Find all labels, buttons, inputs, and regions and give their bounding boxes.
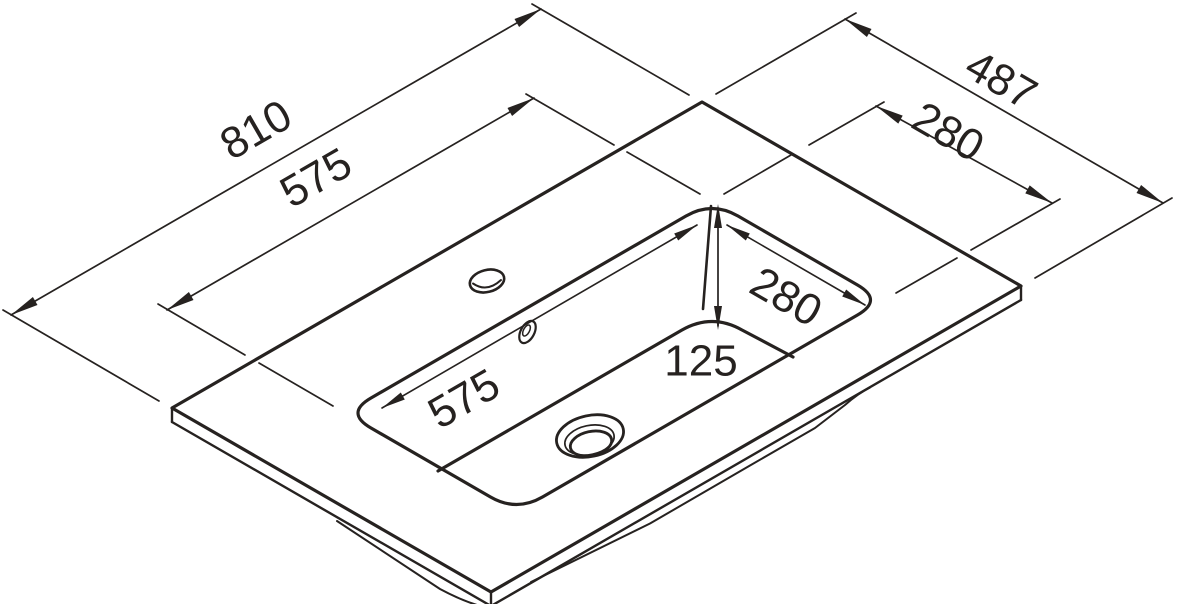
label-slab-depth: 487: [957, 40, 1045, 119]
dimension-line: [845, 19, 1163, 203]
basin-corner-edge: [703, 206, 711, 309]
dimension-basin-length-inner: [382, 225, 697, 408]
extension-line: [3, 310, 159, 401]
arrowhead-icon: [674, 225, 697, 241]
label-slab-length: 810: [212, 90, 300, 169]
extension-line: [809, 102, 884, 145]
dimension-line: [382, 225, 697, 408]
arrowhead-icon: [876, 106, 903, 124]
arrowhead-icon: [714, 306, 722, 330]
washbasin-dimension-drawing: 810 575 487 280 575 280 125: [0, 0, 1200, 604]
overflow-hole: [516, 318, 539, 346]
label-basin-length-inner: 575: [420, 359, 508, 438]
extension-line: [259, 363, 333, 406]
arrowhead-icon: [845, 19, 872, 37]
extension-line: [724, 155, 791, 194]
arrowhead-icon: [842, 290, 865, 306]
arrowhead-icon: [508, 98, 535, 116]
extension-line: [532, 4, 689, 95]
faucet-hole: [467, 266, 506, 296]
label-basin-width-top: 280: [904, 92, 992, 171]
label-basin-width-inner: 280: [742, 257, 830, 336]
extension-line: [716, 13, 856, 94]
technical-drawing-page: 810 575 487 280 575 280 125: [0, 0, 1200, 604]
arrowhead-icon: [167, 292, 194, 310]
arrowhead-icon: [515, 9, 542, 27]
extension-line: [158, 304, 245, 355]
label-basin-depth: 125: [664, 337, 737, 386]
extension-line: [896, 258, 957, 293]
slab-bottom-outline: [172, 300, 1021, 604]
dimension-line: [11, 9, 541, 315]
arrowhead-icon: [1025, 185, 1052, 203]
arrowhead-icon: [1137, 185, 1164, 203]
dimension-slab-length: [3, 4, 689, 401]
extension-line: [971, 199, 1060, 250]
arrowhead-icon: [11, 297, 38, 315]
arrowhead-icon: [382, 393, 405, 409]
arrowhead-icon: [727, 225, 750, 241]
extension-line: [627, 152, 700, 194]
extension-line: [526, 94, 614, 145]
extension-line: [1035, 198, 1172, 278]
